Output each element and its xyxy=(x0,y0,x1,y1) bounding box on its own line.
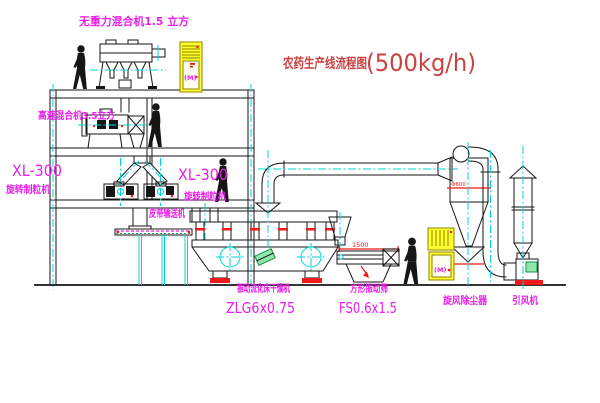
person-second-floor xyxy=(148,103,162,147)
label-dryer-name: 振动流化床干燥机 xyxy=(237,282,290,295)
dryer-plenum xyxy=(190,211,337,222)
label-high-speed-mixer: 高速混合机3.5立方 xyxy=(38,109,115,122)
dryer-mounts xyxy=(195,222,335,240)
sieve-deck xyxy=(337,251,399,264)
gravity-free-mixer xyxy=(90,40,166,112)
page-title: 农药生产线流程图 xyxy=(282,55,367,72)
title-capacity: (500kg/h) xyxy=(366,49,476,77)
flow-diagram-svg: (M) xyxy=(0,0,600,403)
label-sieve-model: FS0.6x1.5 xyxy=(339,299,397,317)
label-belt-conveyor: 皮带输送机 xyxy=(148,207,185,220)
label-fan: 引风机 xyxy=(512,294,538,307)
belt-conveyor xyxy=(115,229,192,285)
label-granulator-right-model: XL-300 xyxy=(178,165,228,184)
motor-symbol: (M) xyxy=(184,74,196,82)
motor-symbol: (M) xyxy=(434,266,446,274)
person-ground-floor xyxy=(404,238,419,284)
label-gravity-mixer: 无重力混合机1.5 立方 xyxy=(78,14,189,28)
control-cabinet-top: (M) xyxy=(180,42,202,92)
person-top-floor xyxy=(73,45,87,89)
fluid-bed-dryer xyxy=(190,203,338,283)
label-granulator-left-name: 旋转制粒机 xyxy=(5,183,50,196)
label-granulator-right-name: 旋转制粒机 xyxy=(183,190,226,203)
vibrating-sieve: 1500 xyxy=(329,212,399,282)
down-chute xyxy=(129,208,151,229)
label-dryer-model: ZLG6x0.75 xyxy=(226,299,295,317)
sieve-length-dim: 1500 xyxy=(352,241,369,249)
dryer-sight-glass xyxy=(255,249,276,266)
cyclone-diameter-dim: Φ600 xyxy=(451,182,466,188)
label-sieve-name: 方形振动筛 xyxy=(350,282,388,295)
fan-motor xyxy=(526,262,537,272)
splitter-chute xyxy=(114,156,167,186)
sieve-base xyxy=(346,264,391,282)
label-cyclone: 旋风除尘器 xyxy=(442,294,488,307)
label-granulator-left-model: XL-300 xyxy=(12,161,62,180)
cad-drawing-canvas: (M) xyxy=(0,0,600,403)
control-cabinet-ground: (M) xyxy=(428,228,454,280)
